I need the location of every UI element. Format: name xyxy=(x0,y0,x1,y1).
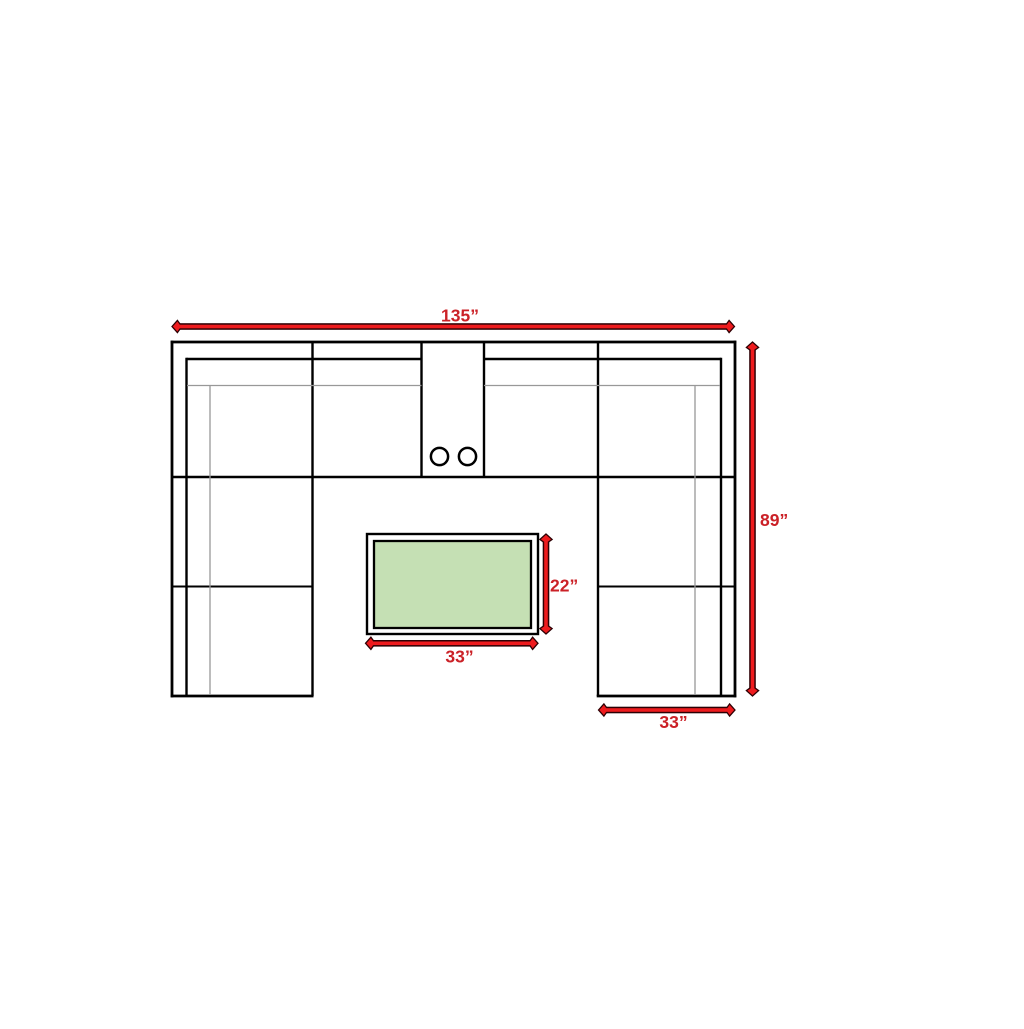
svg-text:22”: 22” xyxy=(550,576,578,596)
svg-text:89”: 89” xyxy=(760,510,788,530)
svg-text:135”: 135” xyxy=(441,306,479,326)
svg-text:33”: 33” xyxy=(445,647,473,667)
svg-text:33”: 33” xyxy=(659,712,687,732)
